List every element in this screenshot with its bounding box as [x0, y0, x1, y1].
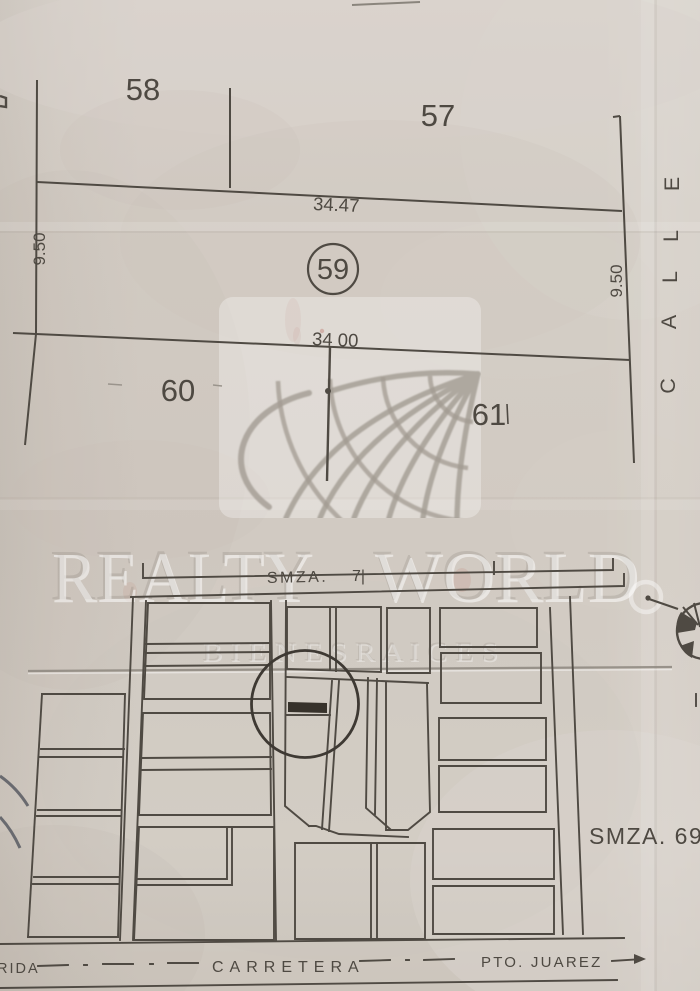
svg-text:9.50: 9.50 [607, 264, 626, 297]
svg-text:SMZA. 69: SMZA. 69 [589, 823, 700, 849]
svg-text:CARRETERA: CARRETERA [212, 959, 365, 976]
svg-text:C: C [656, 378, 680, 394]
svg-text:7|: 7| [352, 568, 365, 585]
svg-text:58: 58 [126, 72, 160, 107]
svg-text:PTO. JUAREZ: PTO. JUAREZ [481, 954, 602, 971]
svg-text:SMZA.: SMZA. [267, 569, 329, 587]
svg-text:WORLD: WORLD [375, 538, 640, 618]
svg-text:59: 59 [317, 254, 349, 286]
svg-text:34.47: 34.47 [313, 193, 360, 216]
svg-text:RIDA: RIDA [0, 961, 40, 977]
svg-text:61: 61 [472, 397, 506, 432]
svg-text:57: 57 [421, 98, 455, 133]
svg-text:60: 60 [161, 373, 195, 408]
svg-text:L: L [659, 230, 683, 242]
svg-text:9.50: 9.50 [30, 232, 49, 265]
svg-text:L: L [658, 271, 682, 283]
svg-text:34 00: 34 00 [312, 328, 359, 351]
svg-text:E: E [660, 177, 684, 191]
svg-text:A: A [657, 314, 681, 329]
